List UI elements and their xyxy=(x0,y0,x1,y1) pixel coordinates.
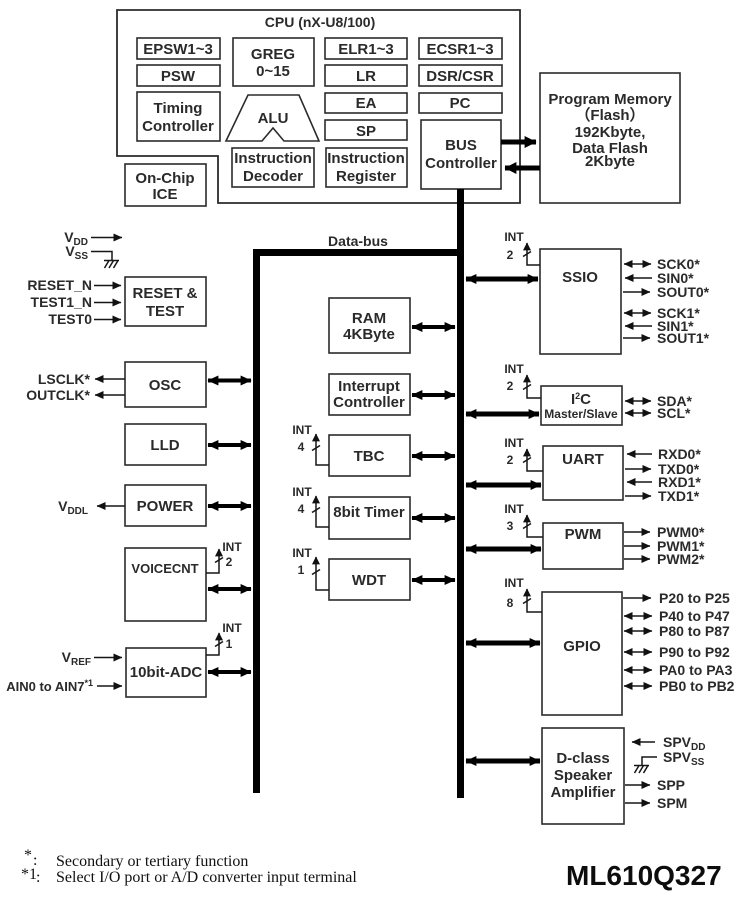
svg-text:4: 4 xyxy=(298,440,305,454)
svg-text::: : xyxy=(36,869,40,886)
svg-text:WDT: WDT xyxy=(352,572,386,589)
svg-text:INT: INT xyxy=(504,576,524,590)
svg-text:Interrupt: Interrupt xyxy=(338,378,400,395)
svg-text:192Kbyte,: 192Kbyte, xyxy=(575,124,646,141)
svg-text:3: 3 xyxy=(507,519,514,533)
svg-text:TBC: TBC xyxy=(354,448,385,465)
svg-text:ALU: ALU xyxy=(258,110,289,127)
svg-text:Select I/O port or A/D convert: Select I/O port or A/D converter input t… xyxy=(56,869,357,886)
svg-text:EPSW1~3: EPSW1~3 xyxy=(143,41,213,58)
svg-text:Controller: Controller xyxy=(425,155,497,172)
svg-text:P40 to P47: P40 to P47 xyxy=(659,608,730,624)
svg-text:Timing: Timing xyxy=(154,100,203,117)
svg-text:8: 8 xyxy=(507,596,514,610)
svg-text:Decoder: Decoder xyxy=(243,168,303,185)
svg-text:Controller: Controller xyxy=(333,394,405,411)
svg-text:On-Chip: On-Chip xyxy=(135,170,194,187)
svg-text:Master/Slave: Master/Slave xyxy=(544,407,618,421)
svg-text:P20 to P25: P20 to P25 xyxy=(659,590,730,606)
svg-text:ML610Q327: ML610Q327 xyxy=(566,860,722,891)
svg-text:BUS: BUS xyxy=(445,137,477,154)
svg-text:SPM: SPM xyxy=(657,795,687,811)
svg-text:UART: UART xyxy=(562,451,604,468)
svg-text:GPIO: GPIO xyxy=(563,638,601,655)
svg-text:PC: PC xyxy=(450,95,471,112)
svg-text:2: 2 xyxy=(507,379,514,393)
svg-text:SP: SP xyxy=(356,123,376,140)
svg-text:RESET &: RESET & xyxy=(132,285,197,302)
svg-text:10bit-ADC: 10bit-ADC xyxy=(130,664,203,681)
svg-text:LLD: LLD xyxy=(150,437,179,454)
svg-text:PSW: PSW xyxy=(161,68,196,85)
svg-text:PB0 to PB2: PB0 to PB2 xyxy=(659,678,735,694)
svg-text:OSC: OSC xyxy=(149,377,182,394)
svg-text:INT: INT xyxy=(222,540,242,554)
svg-text:SCL*: SCL* xyxy=(657,405,691,421)
svg-text:D-class: D-class xyxy=(556,750,609,767)
svg-text:Data-bus: Data-bus xyxy=(328,233,388,249)
svg-text:VOICECNT: VOICECNT xyxy=(131,561,198,576)
svg-text:TEST0: TEST0 xyxy=(48,311,92,327)
svg-text:ICE: ICE xyxy=(152,186,177,203)
svg-text:*: * xyxy=(24,847,32,864)
svg-text:PA0 to PA3: PA0 to PA3 xyxy=(659,662,733,678)
svg-text:I2C: I2C xyxy=(571,391,591,408)
svg-text:SOUT0*: SOUT0* xyxy=(657,284,710,300)
svg-text:*1: *1 xyxy=(21,866,37,883)
svg-text:PWM2*: PWM2* xyxy=(657,551,705,567)
svg-text:SSIO: SSIO xyxy=(562,269,598,286)
svg-text:Controller: Controller xyxy=(142,118,214,135)
svg-text:INT: INT xyxy=(292,423,312,437)
svg-text:INT: INT xyxy=(222,621,242,635)
svg-text:8bit Timer: 8bit Timer xyxy=(333,504,405,521)
svg-text:INT: INT xyxy=(504,436,524,450)
svg-text:INT: INT xyxy=(292,546,312,560)
svg-text:Secondary or tertiary function: Secondary or tertiary function xyxy=(56,853,248,870)
svg-text:1: 1 xyxy=(226,637,233,651)
svg-text:POWER: POWER xyxy=(137,498,194,515)
svg-text:TEST: TEST xyxy=(146,303,184,320)
svg-text:INT: INT xyxy=(504,502,524,516)
svg-text:P80 to P87: P80 to P87 xyxy=(659,623,730,639)
svg-text:0~15: 0~15 xyxy=(256,63,290,80)
svg-text:SPP: SPP xyxy=(657,777,685,793)
svg-text:2: 2 xyxy=(507,248,514,262)
svg-text:ELR1~3: ELR1~3 xyxy=(338,41,393,58)
svg-text:4KByte: 4KByte xyxy=(343,326,395,343)
svg-text:RXD0*: RXD0* xyxy=(658,446,701,462)
svg-text:LR: LR xyxy=(356,68,376,85)
svg-text:DSR/CSR: DSR/CSR xyxy=(426,68,494,85)
svg-text:2Kbyte: 2Kbyte xyxy=(585,153,635,170)
svg-text:CPU (nX-U8/100): CPU (nX-U8/100) xyxy=(265,14,375,30)
svg-text:4: 4 xyxy=(298,502,305,516)
svg-text:P90 to P92: P90 to P92 xyxy=(659,644,730,660)
svg-text:Instruction: Instruction xyxy=(327,150,405,167)
svg-text:PWM: PWM xyxy=(565,526,602,543)
svg-text:Speaker: Speaker xyxy=(554,767,613,784)
svg-text:TXD1*: TXD1* xyxy=(658,488,700,504)
svg-text:（Flash）: （Flash） xyxy=(575,106,644,124)
svg-text:INT: INT xyxy=(504,362,524,376)
svg-text:TEST1_N: TEST1_N xyxy=(31,294,92,310)
svg-text:INT: INT xyxy=(504,230,524,244)
svg-text:GREG: GREG xyxy=(251,46,295,63)
svg-text:OUTCLK*: OUTCLK* xyxy=(26,387,90,403)
svg-text:Instruction: Instruction xyxy=(234,150,312,167)
svg-text:LSCLK*: LSCLK* xyxy=(38,371,91,387)
svg-text:ECSR1~3: ECSR1~3 xyxy=(426,41,493,58)
svg-text:Register: Register xyxy=(336,168,396,185)
svg-text:Program Memory: Program Memory xyxy=(548,91,672,108)
svg-text:INT: INT xyxy=(292,485,312,499)
svg-text:EA: EA xyxy=(356,95,377,112)
svg-text:AIN0 to AIN7*1: AIN0 to AIN7*1 xyxy=(6,678,93,694)
svg-text:RAM: RAM xyxy=(352,310,386,327)
svg-text:2: 2 xyxy=(226,555,233,569)
svg-text:1: 1 xyxy=(298,563,305,577)
svg-text:SOUT1*: SOUT1* xyxy=(657,330,710,346)
svg-text:2: 2 xyxy=(507,453,514,467)
svg-text:Amplifier: Amplifier xyxy=(550,784,615,801)
svg-text:RESET_N: RESET_N xyxy=(27,277,92,293)
